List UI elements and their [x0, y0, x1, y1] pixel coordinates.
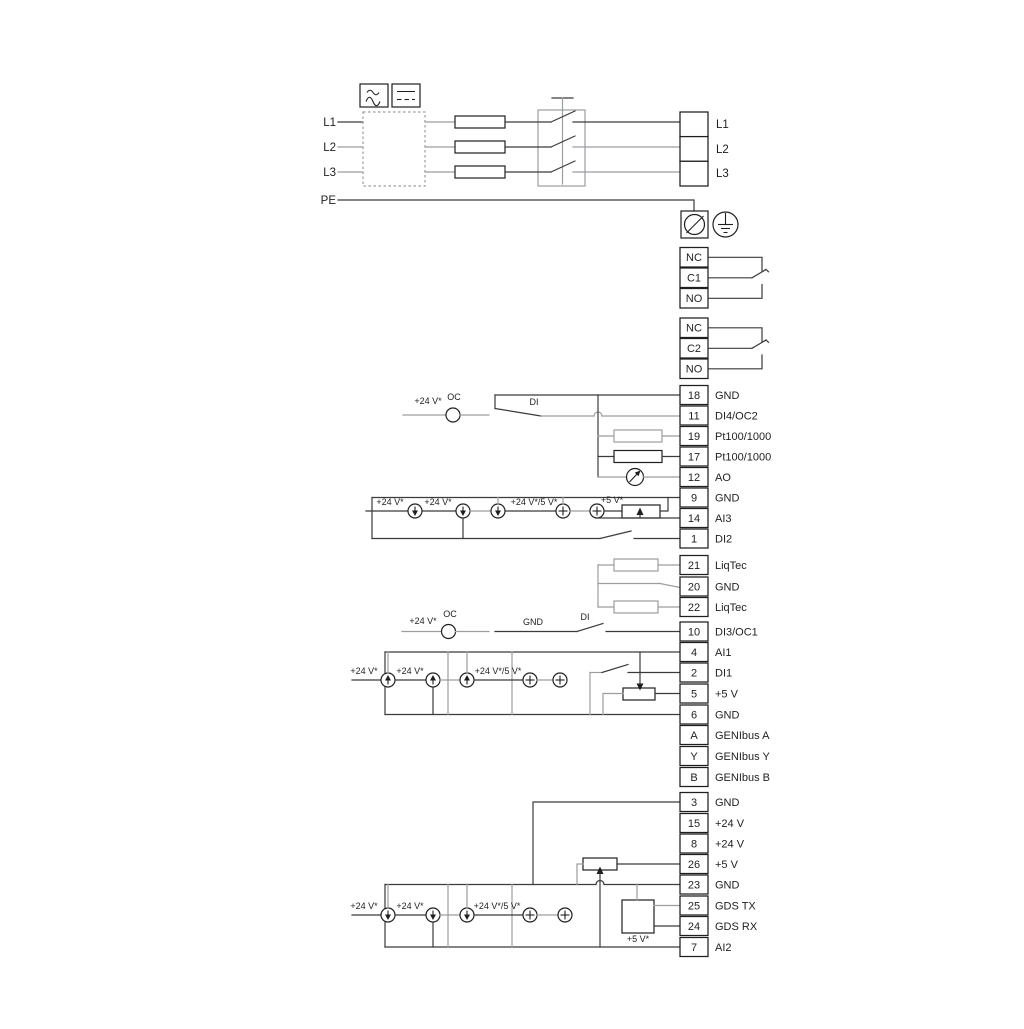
terminal-label: AI1 [715, 647, 732, 659]
terminal-number: 12 [688, 472, 700, 484]
open-collector-icon [442, 625, 456, 639]
terminal-number: 18 [688, 390, 700, 402]
terminal-label: GENIbus Y [715, 751, 770, 763]
pe-label: PE [321, 195, 337, 207]
relay2-contact-blade [752, 340, 766, 348]
fuse-l3 [455, 166, 505, 178]
relay1-contact-blade [752, 270, 766, 278]
terminal-strip-2: 10DI3/OC1 4AI1 2DI1 5+5 V 6GND AGENIbus … [680, 622, 770, 787]
plus24v-label: +24 V* [350, 666, 378, 676]
terminal-number: 2 [691, 667, 697, 679]
ai3-sensor-options: +24 V* +24 V* +24 V*/5 V* +5 V* [366, 495, 680, 539]
liqtec-circuit [598, 559, 680, 613]
terminal-number: 19 [688, 431, 700, 443]
current-source-icon [456, 504, 470, 518]
terminal-row: 11DI4/OC2 [680, 406, 758, 425]
current-source-icon [381, 908, 395, 922]
terminal-label: GND [715, 492, 740, 504]
terminal-number: 5 [691, 688, 697, 700]
potentiometer [622, 505, 660, 518]
dc-symbol [392, 84, 420, 107]
phase-label-right-l2: L2 [716, 144, 729, 156]
oc-label: OC [447, 392, 461, 402]
terminal-row: 26+5 V [680, 855, 739, 874]
relay1-no-label: NO [686, 293, 703, 305]
terminal-number: 6 [691, 709, 697, 721]
terminal-row: 12AO [680, 468, 731, 487]
terminal-row: 22LiqTec [680, 598, 747, 617]
terminal-row: 25GDS TX [680, 896, 756, 915]
liqtec-resistor-21 [614, 559, 658, 571]
terminal-label: +5 V [715, 688, 739, 700]
phase-label-left-l1: L1 [323, 117, 336, 129]
terminal-number: 15 [688, 818, 700, 830]
terminal-number: 11 [688, 410, 699, 422]
di4-oc2-circuit: +24 V* OC DI [403, 392, 680, 422]
terminal-row: 14AI3 [680, 509, 732, 528]
terminal-strip-1: 18GND 11DI4/OC2 19Pt100/1000 17Pt100/100… [680, 386, 771, 549]
terminal-row: 21LiqTec [680, 556, 747, 575]
di1-switch-blade [602, 665, 628, 673]
terminal-label: GENIbus A [715, 730, 770, 742]
terminal-number: 10 [688, 626, 700, 638]
relay2-no-label: NO [686, 364, 703, 376]
terminal-label: GND [715, 797, 740, 809]
terminal-row: BGENIbus B [680, 768, 770, 787]
terminal-label: AI2 [715, 942, 732, 954]
terminal-number: 14 [688, 513, 700, 525]
terminal-row: 23GND [680, 875, 740, 894]
terminal-number: 21 [688, 560, 700, 572]
current-source-icon [460, 673, 474, 687]
open-collector-icon [446, 408, 460, 422]
terminal-row: 2DI1 [680, 663, 732, 682]
fuse-l2 [455, 141, 505, 153]
phase-label-left-l3: L3 [323, 167, 336, 179]
di-label: DI [530, 397, 539, 407]
di3-switch-blade [577, 624, 603, 632]
gnd-wire-label: GND [523, 617, 544, 627]
phase-label-right-l1: L1 [716, 119, 729, 131]
terminal-label: +24 V [715, 818, 745, 830]
terminal-label: LiqTec [715, 602, 747, 614]
terminal-label: Pt100/1000 [715, 431, 771, 443]
voltage-source-icon [556, 504, 570, 518]
terminal-label: AO [715, 472, 731, 484]
potentiometer [623, 688, 655, 700]
pe-terminal [681, 211, 708, 238]
voltage-source-icon [523, 673, 537, 687]
relay1-nc-label: NC [686, 252, 702, 264]
terminal-row: 15+24 V [680, 814, 745, 833]
terminal-number: 22 [688, 602, 700, 614]
wiper-arrow [637, 684, 644, 691]
filter-box [363, 112, 425, 186]
terminal-label: GND [715, 390, 740, 402]
terminal-row: YGENIbus Y [680, 747, 770, 766]
pt100-resistor-17 [614, 451, 662, 463]
relay-1: NC C1 NO [680, 248, 769, 309]
ai2-sensor-options: +5 V* +24 V* +24 V* +24 V*/5 V* [350, 802, 680, 947]
plus24v-label: +24 V* [396, 666, 424, 676]
ao-meter-icon [627, 469, 644, 486]
main-switch [505, 98, 585, 186]
terminal-label: +24 V [715, 838, 745, 850]
plus24v-5v-label: +24 V*/5 V* [475, 666, 522, 676]
terminal-row: 17Pt100/1000 [680, 447, 771, 466]
terminal-row: 8+24 V [680, 834, 745, 853]
pt100-and-ao-circuit [598, 395, 680, 486]
plus24v-label: +24 V* [414, 396, 442, 406]
gds-module: +5 V* [622, 885, 680, 945]
plus24v-label: +24 V* [424, 497, 452, 507]
fuse-l1 [455, 116, 505, 128]
pe-wire [338, 200, 694, 211]
relay2-c2-label: C2 [687, 343, 701, 355]
current-source-icon [491, 504, 505, 518]
current-source-icon [426, 673, 440, 687]
terminal-row: AGENIbus A [680, 726, 770, 745]
wiring-diagram-page: L1 L2 L3 PE [0, 0, 1024, 1024]
oc-label: OC [443, 609, 457, 619]
current-source-icon [408, 504, 422, 518]
terminal-label: GDS TX [715, 900, 756, 912]
terminal-number: 17 [688, 451, 700, 463]
wiring-diagram: L1 L2 L3 PE [0, 0, 1024, 1024]
terminal-label: DI2 [715, 533, 732, 545]
power-input-section: L1 L2 L3 PE [321, 84, 738, 238]
mains-terminal-block [680, 112, 708, 186]
terminal-number: 9 [691, 492, 697, 504]
voltage-source-icon [590, 504, 604, 518]
terminal-row: 19Pt100/1000 [680, 427, 771, 446]
terminal-number: 26 [688, 859, 700, 871]
terminal-label: Pt100/1000 [715, 451, 771, 463]
di-label: DI [581, 612, 590, 622]
liqtec-resistor-22 [614, 601, 658, 613]
terminal-number: 7 [691, 942, 697, 954]
current-source-icon [426, 908, 440, 922]
pt100-resistor-19 [614, 430, 662, 442]
terminal-label: DI1 [715, 667, 732, 679]
plus24v-label: +24 V* [350, 901, 378, 911]
di2-switch-blade [600, 531, 631, 539]
relay-2: NC C2 NO [680, 318, 769, 379]
terminal-row: 10DI3/OC1 [680, 622, 758, 641]
voltage-source-icon [523, 908, 537, 922]
terminal-number: 8 [691, 838, 697, 850]
terminal-label: GND [715, 709, 740, 721]
plus24v-5v-label: +24 V*/5 V* [511, 497, 558, 507]
terminal-number: 24 [688, 921, 700, 933]
phase-label-right-l3: L3 [716, 168, 729, 180]
terminal-label: GENIbus B [715, 772, 770, 784]
terminal-number: A [690, 730, 698, 742]
plus5v-label: +5 V* [627, 934, 650, 944]
plus24v-label: +24 V* [396, 901, 424, 911]
terminal-label: DI3/OC1 [715, 626, 758, 638]
terminal-label: GND [715, 581, 740, 593]
terminal-row: 6GND [680, 705, 740, 724]
terminal-number: 3 [691, 797, 697, 809]
terminal-number: 1 [691, 533, 697, 545]
terminal-row: 4AI1 [680, 643, 732, 662]
liqtec-strip: 21LiqTec 20GND 22LiqTec [680, 556, 747, 617]
terminal-strip-3: 3GND 15+24 V 8+24 V 26+5 V 23GND 25GDS T… [680, 793, 758, 957]
terminal-row: 9GND [680, 488, 740, 507]
terminal-row: 1DI2 [680, 529, 732, 548]
voltage-source-icon [558, 908, 572, 922]
terminal-number: 23 [688, 879, 700, 891]
terminal-label: GDS RX [715, 921, 758, 933]
plus24v-5v-label: +24 V*/5 V* [474, 901, 521, 911]
voltage-source-icon [553, 673, 567, 687]
current-source-icon [381, 673, 395, 687]
terminal-row: 24GDS RX [680, 917, 758, 936]
plus5v-label: +5 V* [601, 495, 624, 505]
terminal-row: 18GND [680, 386, 740, 405]
relay1-c1-label: C1 [687, 273, 701, 285]
di4-switch-blade [495, 409, 541, 417]
terminal-row: 20GND [680, 577, 740, 596]
terminal-row: 5+5 V [680, 684, 739, 703]
terminal-label: GND [715, 879, 740, 891]
terminal-number: 25 [688, 900, 700, 912]
relay2-nc-label: NC [686, 323, 702, 335]
terminal-number: 20 [688, 581, 700, 593]
plus24v-label: +24 V* [376, 497, 404, 507]
earth-icon [713, 212, 738, 237]
terminal-label: DI4/OC2 [715, 410, 758, 422]
ac-symbol [360, 84, 388, 107]
terminal-row: 3GND [680, 793, 740, 812]
terminal-label: AI3 [715, 513, 732, 525]
plus24v-label: +24 V* [409, 616, 437, 626]
phase-label-left-l2: L2 [323, 142, 336, 154]
terminal-number: 4 [691, 647, 697, 659]
terminal-label: LiqTec [715, 560, 747, 572]
ai1-sensor-options: +24 V* +24 V* +24 V*/5 V* [350, 652, 680, 715]
terminal-number: B [690, 772, 697, 784]
current-source-icon [460, 908, 474, 922]
terminal-number: Y [690, 751, 698, 763]
terminal-label: +5 V [715, 859, 739, 871]
terminal-row: 7AI2 [680, 938, 732, 957]
